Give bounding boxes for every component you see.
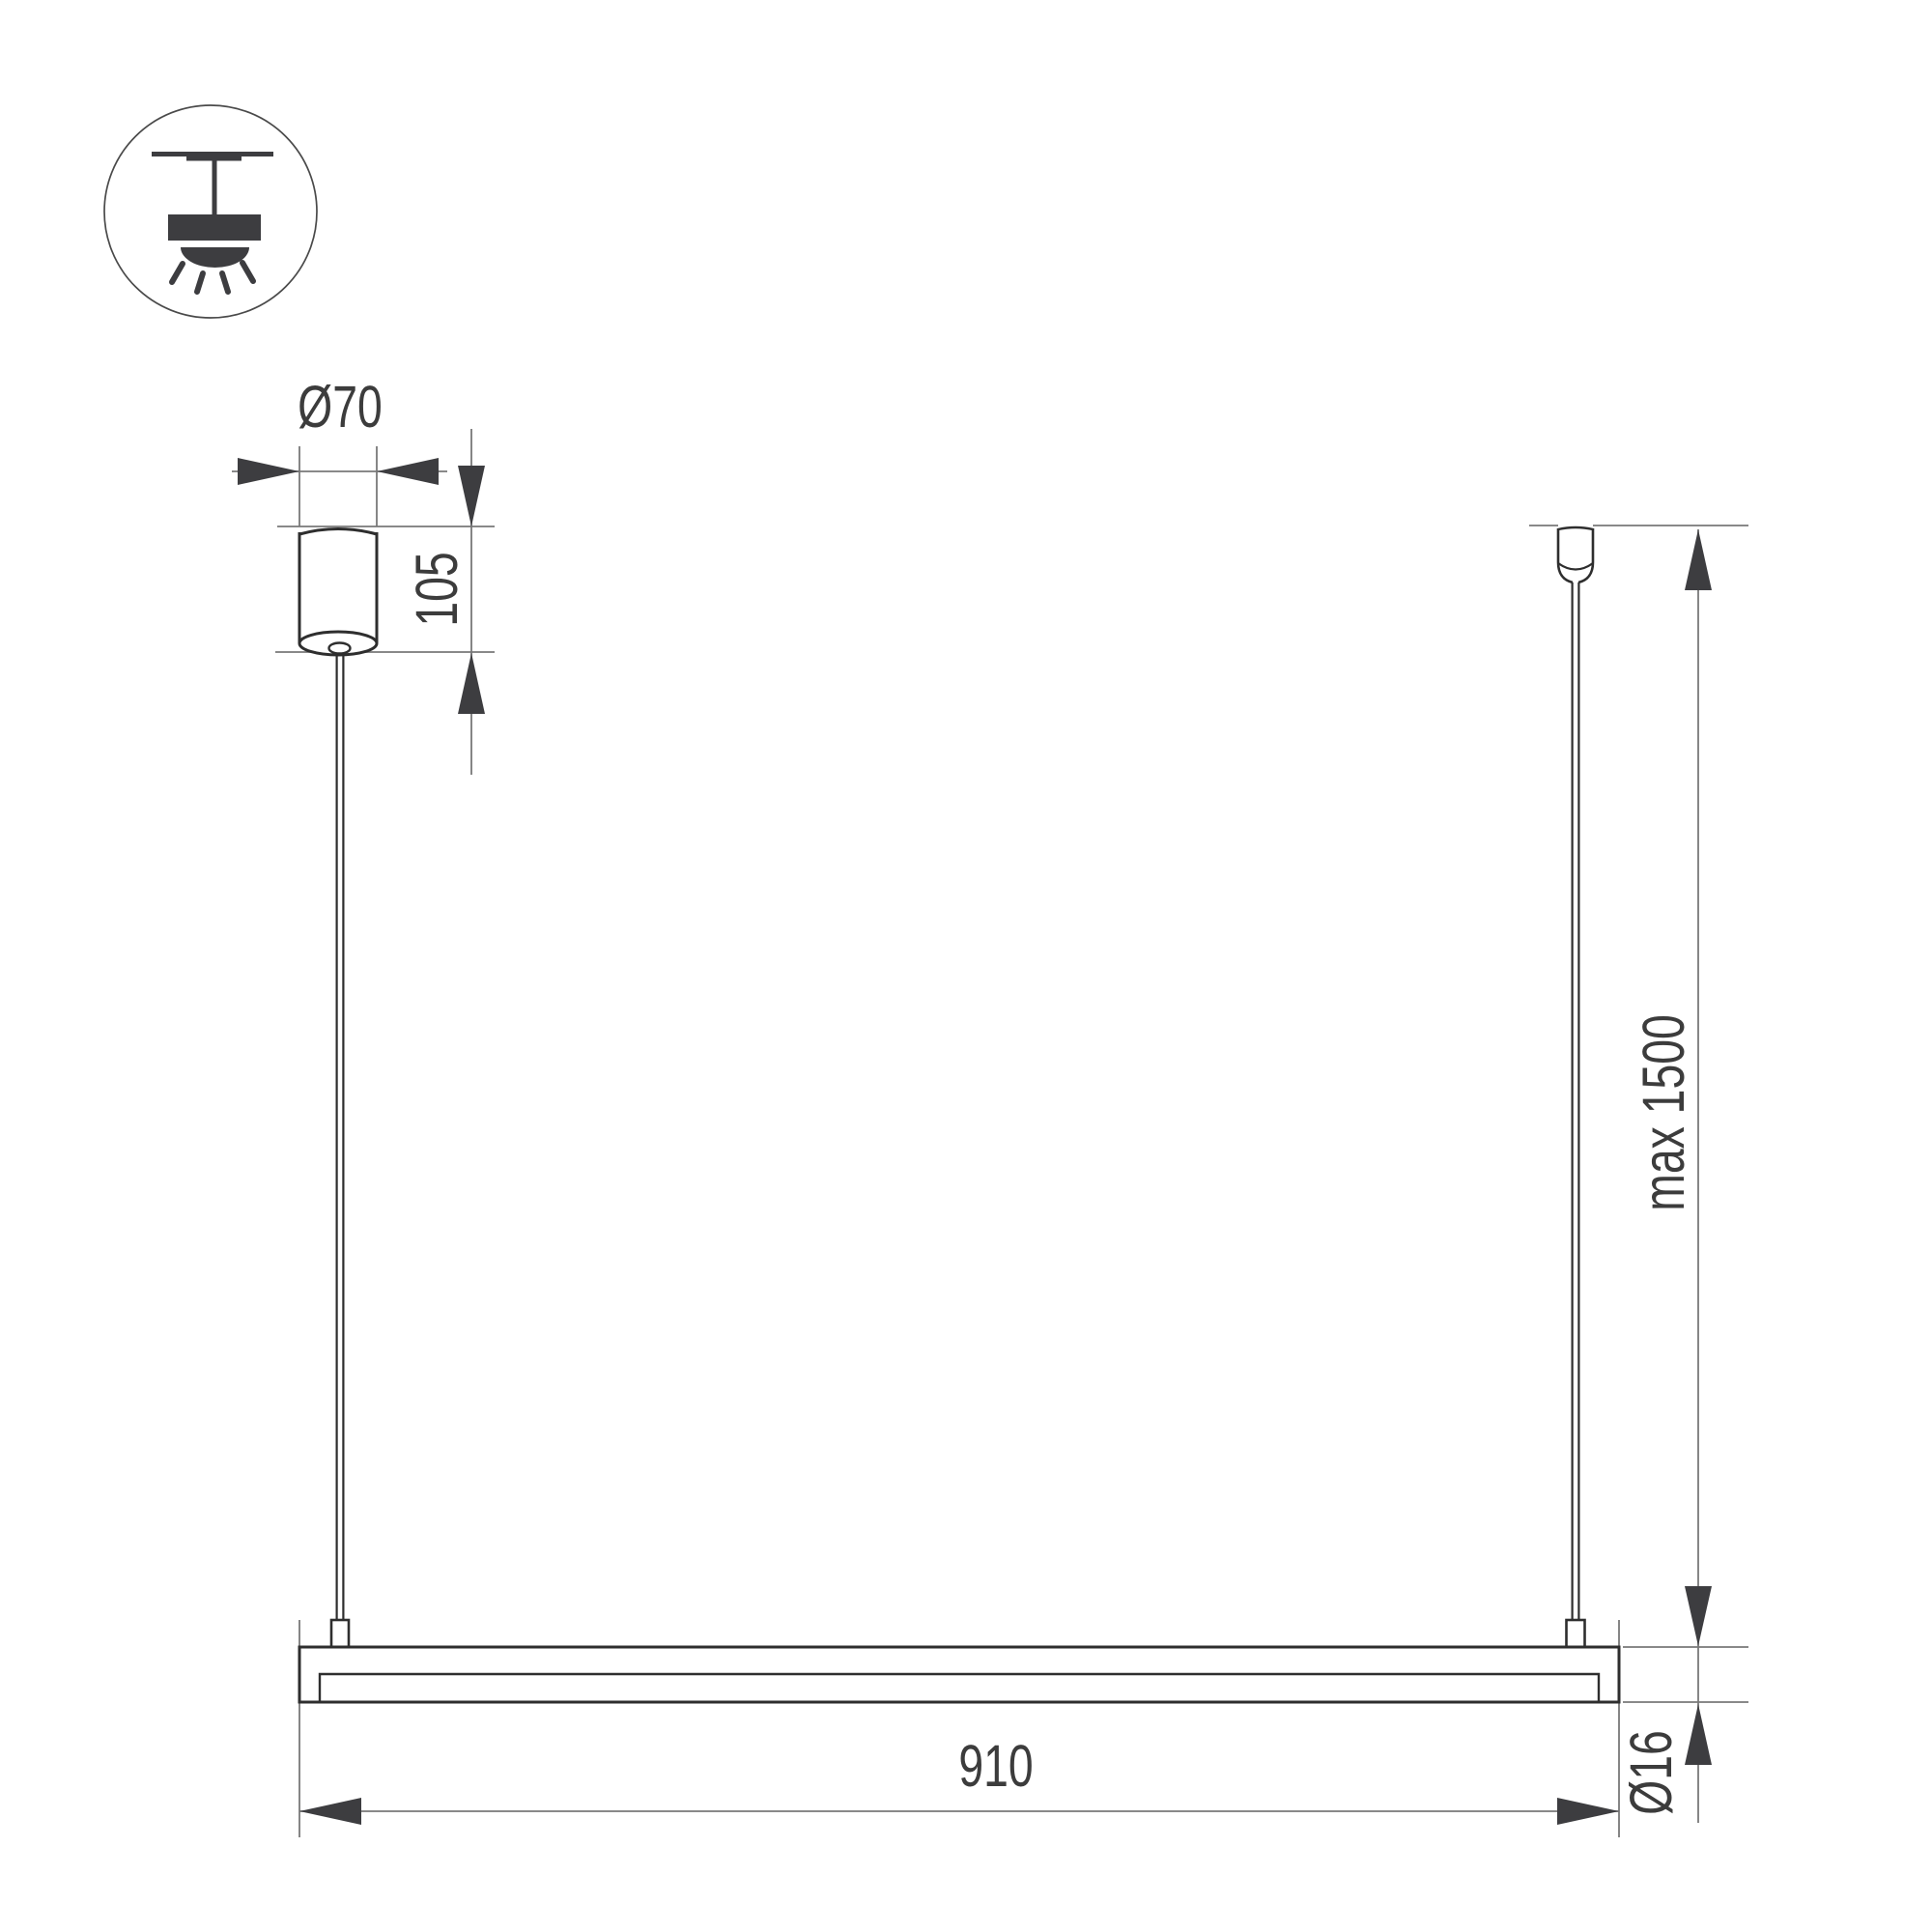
icon-stem [213, 159, 217, 214]
icon-circle [104, 105, 317, 318]
product [299, 526, 1619, 1702]
drawing-svg [0, 0, 1932, 1932]
light-bar [299, 1647, 1619, 1702]
arrow-length-right [1557, 1798, 1619, 1825]
arrow-suspension-bottom [1685, 1586, 1712, 1646]
icon-shade [168, 214, 261, 241]
label-max-suspension: max 1500 [1633, 1003, 1694, 1223]
arrow-tube-dia-bottom [1685, 1704, 1712, 1765]
suspension-wire-left [337, 649, 344, 1621]
wire-grip-right [1567, 1620, 1585, 1647]
arrow-canopy-dia-left [238, 458, 299, 485]
pendant-ceiling-light-icon [104, 105, 317, 318]
suspension-wire-right [1573, 582, 1579, 1621]
label-tube-diameter: Ø16 [1620, 1662, 1682, 1883]
label-canopy-height: 105 [406, 479, 468, 699]
canopy [299, 528, 377, 655]
label-canopy-diameter: Ø70 [230, 376, 450, 438]
technical-drawing-canvas: Ø70 105 max 1500 910 Ø16 [0, 0, 1932, 1932]
arrow-length-left [299, 1798, 361, 1825]
wire-grip-left [331, 1620, 349, 1647]
canopy-cable-gland [329, 643, 351, 654]
suspension-adjuster-right [1558, 526, 1593, 582]
label-fixture-length: 910 [886, 1735, 1106, 1797]
arrow-suspension-top [1685, 529, 1712, 590]
